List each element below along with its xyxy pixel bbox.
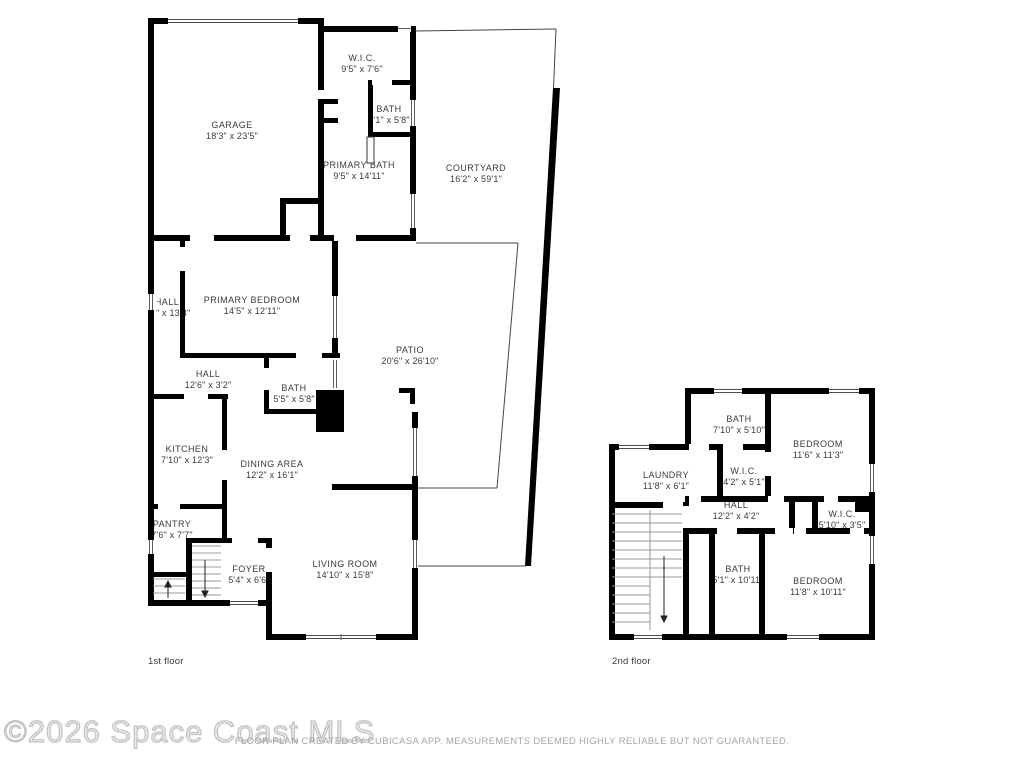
floor-plan-page: GARAGE 18'3" x 23'5" W.I.C. 9'5" x 7'6" … [0,0,1024,768]
room-name: HALL [185,369,232,380]
room-label-garage: GARAGE 18'3" x 23'5" [206,120,258,142]
room-label-kitchen: KITCHEN 7'10" x 12'3" [161,444,213,466]
room-dims: 14'10" x 15'8" [313,570,378,581]
room-name: PRIMARY BATH [323,160,395,171]
room-label-wic-mid-2f: W.I.C. 4'2" x 5'1" [723,466,765,488]
room-dims: 20'6" x 26'10" [381,356,438,367]
room-dims: 11'8" x 6'1" [643,481,689,492]
room-label-primary-bedroom: PRIMARY BEDROOM 14'5" x 12'11" [204,295,300,317]
stairs-second-floor [612,510,682,630]
room-label-bath-bottom-2f: BATH 5'1" x 10'11" [712,564,763,586]
room-name: BATH [713,414,765,425]
room-label-hall-mid: HALL 12'6" x 3'2" [185,369,232,391]
room-dims: 7'10" x 5'10" [713,425,765,436]
stairs-first-floor [153,546,221,595]
room-label-bedroom-se: BEDROOM 11'8" x 10'11" [790,576,846,598]
caption-second-floor: 2nd floor [612,656,651,667]
room-dims: 5'10" x 3'5" [819,520,866,531]
room-name: BATH [273,383,315,394]
room-name: LAUNDRY [643,470,689,481]
room-label-laundry: LAUNDRY 11'8" x 6'1" [643,470,689,492]
room-label-bath-small-1f: BATH 4'1" x 5'8" [368,104,410,126]
room-name: PRIMARY BEDROOM [204,295,300,306]
cubicasa-disclaimer: FLOOR PLAN CREATED BY CUBICASA APP. MEAS… [0,736,1024,747]
room-dims: 4'1" x 5'8" [368,115,410,126]
room-name: BATH [712,564,763,575]
room-dims: 4'2" x 5'1" [723,477,765,488]
room-label-pantry: PANTRY 7'6" x 7'7" [151,519,193,541]
floorplan-drawing [0,0,1024,768]
window-lines [150,20,874,641]
stair-arrow-second-floor [661,556,667,622]
room-label-foyer: FOYER 5'4" x 6'6" [228,564,270,586]
room-label-dining-area: DINING AREA 12'2" x 16'1" [241,459,304,481]
room-label-living-room: LIVING ROOM 14'10" x 15'8" [313,559,378,581]
room-label-patio: PATIO 20'6" x 26'10" [381,345,438,367]
room-name: BEDROOM [790,576,846,587]
room-label-wic-east-2f: W.I.C. 5'10" x 3'5" [819,509,866,531]
room-name: DINING AREA [241,459,304,470]
room-label-wic-1f: W.I.C. 9'5" x 7'6" [341,53,383,75]
room-dims: 12'2" x 16'1" [241,470,304,481]
room-name: COURTYARD [446,163,506,174]
room-label-hall-west: HALL 3'6" x 13'3" [144,297,191,319]
room-name: FOYER [228,564,270,575]
room-name: PATIO [381,345,438,356]
walls-first-floor [148,18,560,640]
room-label-hall-2f: HALL 12'2" x 4'2" [713,500,760,522]
room-dims: 3'6" x 13'3" [144,308,191,319]
room-dims: 12'6" x 3'2" [185,380,232,391]
room-name: KITCHEN [161,444,213,455]
wall-openings [148,18,875,640]
room-name: W.I.C. [341,53,383,64]
room-dims: 9'5" x 14'11" [323,171,395,182]
room-dims: 9'5" x 7'6" [341,64,383,75]
room-name: LIVING ROOM [313,559,378,570]
outdoor-boundary-lines [416,29,556,566]
room-dims: 12'2" x 4'2" [713,511,760,522]
stair-arrows-first-floor [165,560,208,598]
room-dims: 16'2" x 59'1" [446,174,506,185]
room-name: BATH [368,104,410,115]
room-label-bedroom-ne: BEDROOM 11'6" x 11'3" [793,439,844,461]
room-dims: 5'4" x 6'6" [228,575,270,586]
room-dims: 7'10" x 12'3" [161,455,213,466]
room-dims: 5'5" x 5'8" [273,394,315,405]
room-name: BEDROOM [793,439,844,450]
room-name: GARAGE [206,120,258,131]
room-name: W.I.C. [723,466,765,477]
room-dims: 7'6" x 7'7" [151,530,193,541]
room-name: HALL [144,297,191,308]
room-dims: 14'5" x 12'11" [204,306,300,317]
room-dims: 18'3" x 23'5" [206,131,258,142]
room-name: PANTRY [151,519,193,530]
room-label-primary-bath: PRIMARY BATH 9'5" x 14'11" [323,160,395,182]
room-label-bath-top-2f: BATH 7'10" x 5'10" [713,414,765,436]
room-name: HALL [713,500,760,511]
room-label-bath-mid-1f: BATH 5'5" x 5'8" [273,383,315,405]
room-dims: 11'8" x 10'11" [790,587,846,598]
room-name: W.I.C. [819,509,866,520]
room-dims: 5'1" x 10'11" [712,575,763,586]
room-label-courtyard: COURTYARD 16'2" x 59'1" [446,163,506,185]
room-dims: 11'6" x 11'3" [793,450,844,461]
caption-first-floor: 1st floor [148,656,184,667]
